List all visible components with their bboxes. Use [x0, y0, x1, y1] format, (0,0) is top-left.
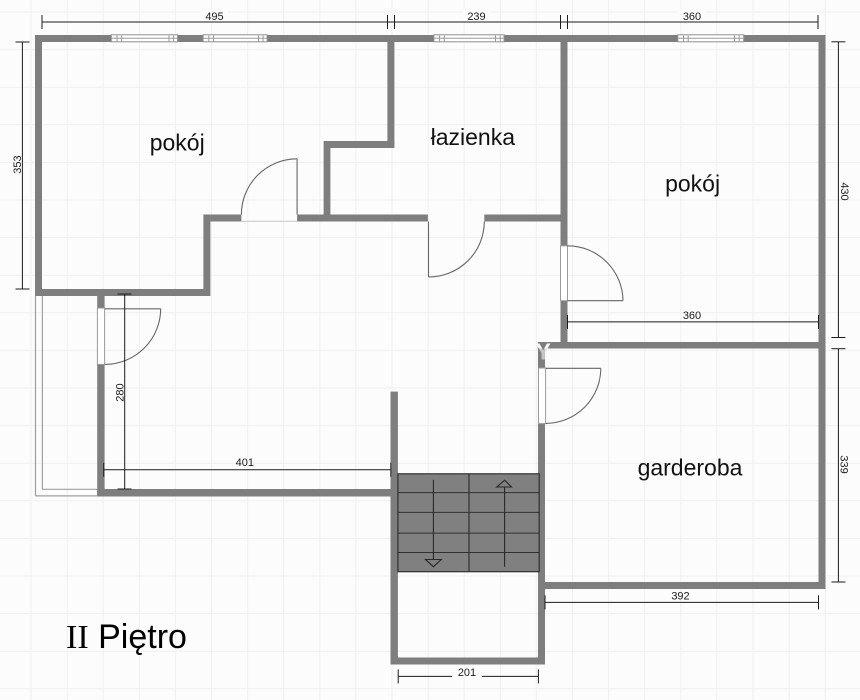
- svg-text:401: 401: [236, 457, 254, 469]
- svg-text:495: 495: [205, 11, 223, 23]
- svg-text:pokój: pokój: [665, 170, 720, 196]
- svg-text:239: 239: [467, 11, 485, 23]
- svg-text:pokój: pokój: [150, 130, 205, 156]
- svg-text:201: 201: [458, 667, 476, 679]
- svg-text:II Piętro: II Piętro: [66, 618, 187, 656]
- svg-text:430: 430: [838, 182, 850, 200]
- svg-text:360: 360: [683, 11, 701, 23]
- svg-text:łazienka: łazienka: [431, 124, 516, 150]
- svg-text:392: 392: [671, 590, 689, 602]
- svg-text:360: 360: [683, 310, 701, 322]
- svg-text:339: 339: [837, 455, 849, 473]
- svg-text:280: 280: [114, 383, 126, 401]
- svg-text:garderoba: garderoba: [638, 455, 743, 481]
- svg-text:353: 353: [12, 155, 24, 173]
